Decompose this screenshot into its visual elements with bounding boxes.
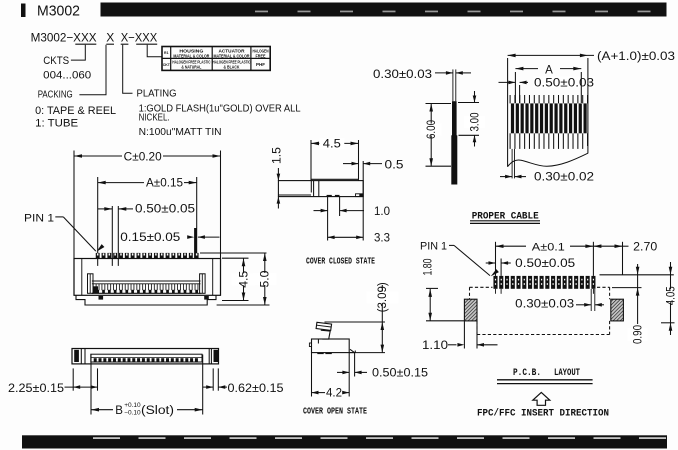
svg-text:A±0.1: A±0.1 [532,241,565,253]
svg-text:1.5: 1.5 [271,147,283,164]
svg-text:A: A [545,64,553,76]
svg-text:C±0.20: C±0.20 [124,151,162,163]
svg-text:NICKEL.: NICKEL. [139,112,170,124]
svg-text:6.00: 6.00 [426,120,438,139]
svg-text:CKT: CKT [163,63,171,67]
svg-text:PHF: PHF [256,62,265,67]
svg-text:R1: R1 [164,51,169,55]
svg-text:FREE: FREE [256,54,266,59]
svg-text:1: TUBE: 1: TUBE [35,118,78,130]
svg-text:3.00: 3.00 [469,113,481,132]
svg-text:0: TAPE & REEL: 0: TAPE & REEL [35,105,116,117]
svg-text:4.5: 4.5 [323,139,341,151]
svg-text:2.70: 2.70 [633,241,657,253]
svg-text:4.2: 4.2 [326,388,342,400]
svg-text:X−XXX: X−XXX [121,31,158,45]
svg-text:& NATURAL: & NATURAL [181,65,201,70]
svg-text:CKTS: CKTS [43,55,69,67]
svg-text:P.C.B.: P.C.B. [513,368,541,379]
svg-text:0.90: 0.90 [633,325,645,344]
svg-text:(3.09): (3.09) [377,282,389,312]
svg-text:4.05: 4.05 [665,286,677,305]
svg-text:2.25±0.15: 2.25±0.15 [8,383,64,395]
svg-text:PLATING: PLATING [137,88,177,100]
svg-text:& BLACK: & BLACK [224,65,240,70]
svg-text:0.50±0.05: 0.50±0.05 [135,204,195,216]
svg-text:FPC/FFC INSERT DIRECTION: FPC/FFC INSERT DIRECTION [477,407,609,419]
svg-text:0.15±0.05: 0.15±0.05 [120,232,180,244]
svg-text:1.10: 1.10 [422,340,448,352]
svg-text:+0.10: +0.10 [124,402,141,409]
svg-text:COVER CLOSED STATE: COVER CLOSED STATE [306,257,375,267]
svg-text:MATERIAL & COLOR: MATERIAL & COLOR [173,54,209,59]
svg-text:N:100u"MATT TIN: N:100u"MATT TIN [139,126,222,138]
svg-text:(Slot): (Slot) [141,405,174,417]
svg-text:PIN 1: PIN 1 [24,213,54,225]
svg-text:5.0: 5.0 [260,271,272,288]
svg-text:0.30±0.03: 0.30±0.03 [373,69,432,81]
svg-text:M3002−XXX: M3002−XXX [31,31,97,45]
svg-text:1.80: 1.80 [422,259,434,276]
svg-text:4.5: 4.5 [238,271,250,288]
svg-text:(A+1.0)±0.03: (A+1.0)±0.03 [597,51,675,63]
svg-text:A±0.15: A±0.15 [146,178,183,190]
svg-text:0.30±0.02: 0.30±0.02 [534,172,594,184]
svg-text:0.50±0.05: 0.50±0.05 [515,258,575,270]
svg-text:COVER OPEN STATE: COVER OPEN STATE [303,407,367,417]
svg-text:B: B [115,405,123,417]
svg-text:0.30±0.03: 0.30±0.03 [515,299,574,311]
svg-text:X: X [106,31,114,45]
svg-text:MATERIAL & COLOR: MATERIAL & COLOR [214,54,250,59]
svg-text:−0.10: −0.10 [124,410,141,417]
svg-text:PIN 1: PIN 1 [420,241,447,253]
svg-text:0.62±0.15: 0.62±0.15 [228,383,284,395]
svg-text:0.50±0.03: 0.50±0.03 [534,78,594,90]
svg-text:M3002: M3002 [37,3,80,20]
svg-text:0.50±0.15: 0.50±0.15 [372,368,428,380]
svg-text:0.5: 0.5 [385,160,404,172]
svg-text:1.0: 1.0 [374,206,390,218]
svg-text:3.3: 3.3 [374,233,390,245]
svg-text:PACKING: PACKING [38,89,73,101]
svg-text:004...060: 004...060 [43,70,91,82]
svg-text:LAYOUT: LAYOUT [554,368,580,379]
